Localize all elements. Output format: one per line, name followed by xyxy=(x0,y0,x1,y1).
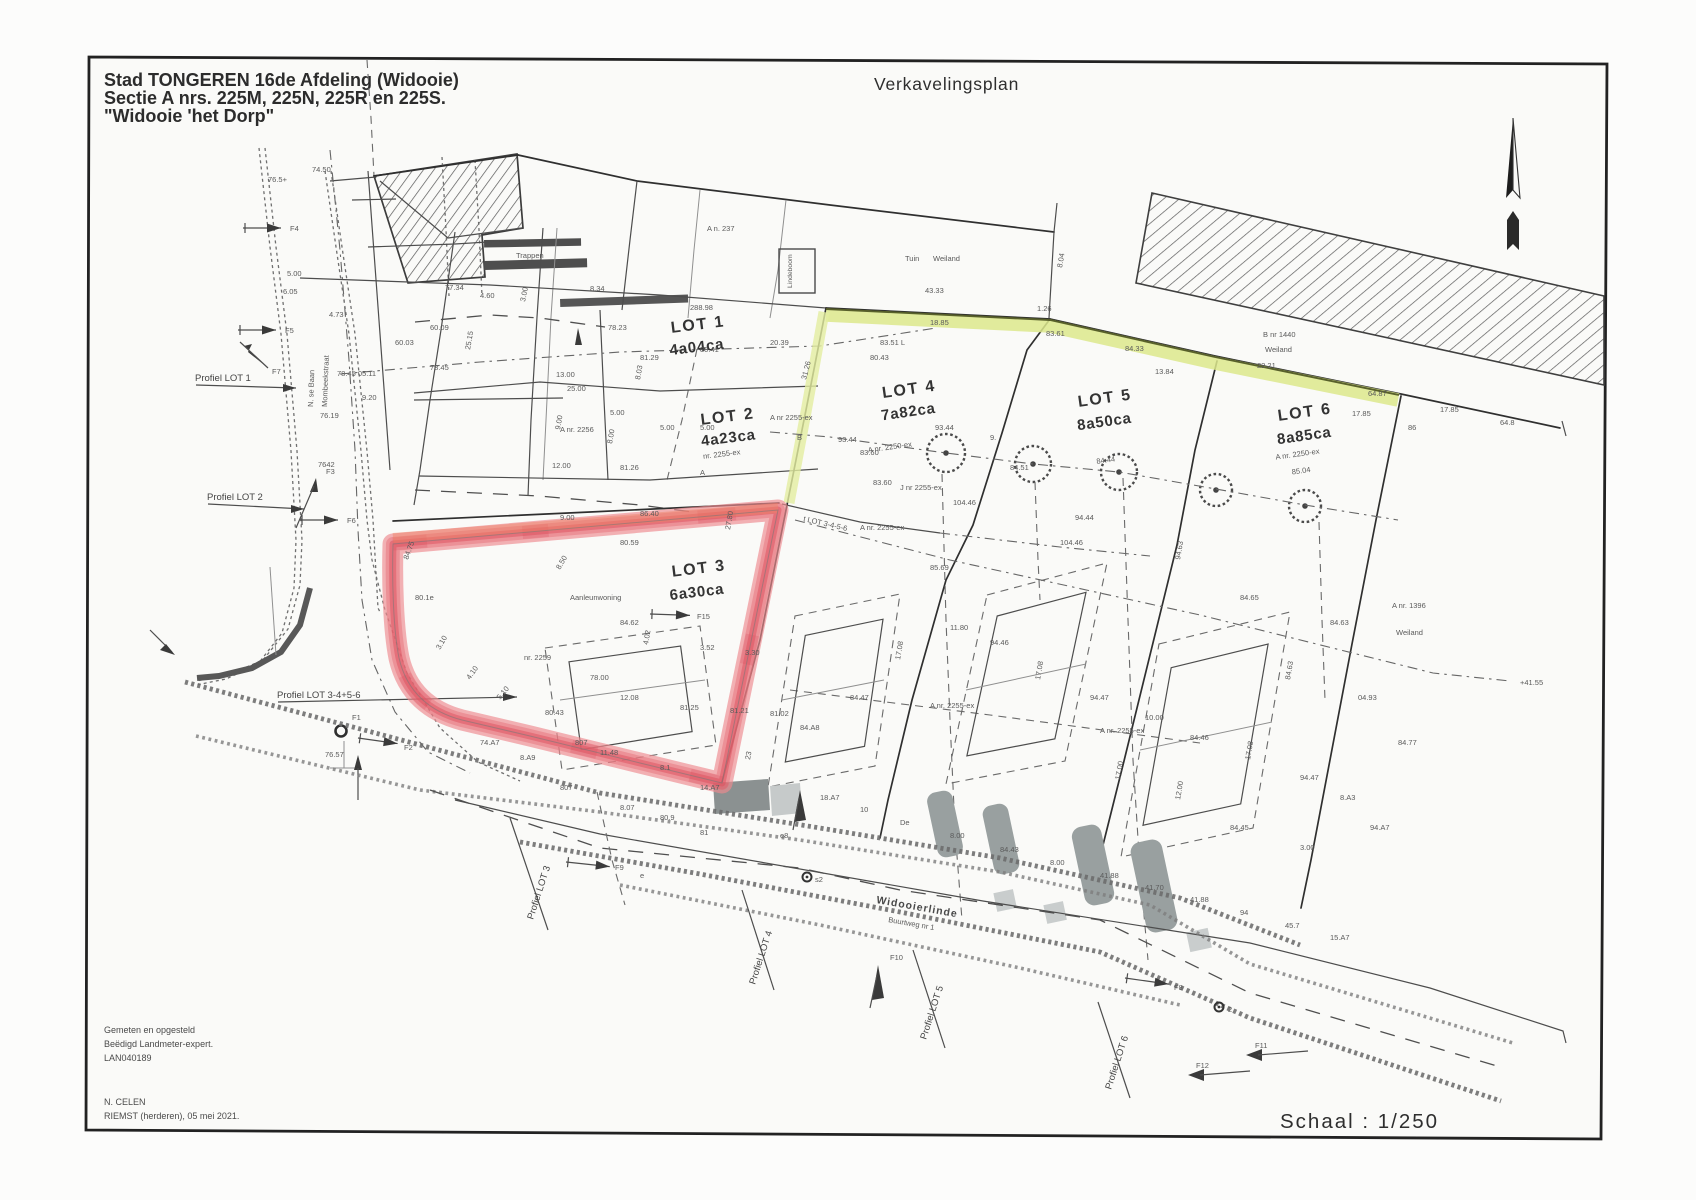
svg-text:84.47: 84.47 xyxy=(850,693,869,702)
svg-text:B nr 1440: B nr 1440 xyxy=(1263,330,1296,339)
svg-text:80.1e: 80.1e xyxy=(415,593,434,602)
svg-text:84.46: 84.46 xyxy=(1190,733,1209,742)
svg-text:8.1: 8.1 xyxy=(660,763,670,772)
svg-text:Stad TONGEREN 16de Afdeling (W: Stad TONGEREN 16de Afdeling (Widooie) xyxy=(104,70,459,90)
svg-text:6.05: 6.05 xyxy=(283,287,298,296)
svg-text:78.00: 78.00 xyxy=(590,673,609,682)
svg-text:Schaal : 1/250: Schaal : 1/250 xyxy=(1280,1110,1439,1133)
svg-text:84.62: 84.62 xyxy=(620,618,639,627)
svg-text:A nr. 1396: A nr. 1396 xyxy=(1392,601,1426,610)
svg-text:Sectie A nrs. 225M, 225N, 225R: Sectie A nrs. 225M, 225N, 225R en 225S. xyxy=(104,88,446,108)
svg-text:94.46: 94.46 xyxy=(990,638,1009,647)
svg-text:N. se Baan: N. se Baan xyxy=(306,370,316,407)
svg-text:Profiel LOT 2: Profiel LOT 2 xyxy=(207,492,263,503)
svg-text:F7: F7 xyxy=(272,367,281,376)
svg-text:76.5+: 76.5+ xyxy=(268,175,288,184)
svg-text:60.09: 60.09 xyxy=(430,323,449,332)
svg-text:14.A7: 14.A7 xyxy=(700,783,720,792)
svg-text:85.69: 85.69 xyxy=(930,563,949,572)
svg-text:94.47: 94.47 xyxy=(1300,773,1319,782)
svg-text:77.34: 77.34 xyxy=(445,283,464,292)
svg-text:17.85: 17.85 xyxy=(1352,409,1371,418)
svg-text:Profiel LOT 1: Profiel LOT 1 xyxy=(195,373,251,384)
svg-text:78.23: 78.23 xyxy=(608,323,627,332)
svg-text:F6: F6 xyxy=(347,516,356,525)
svg-text:86.40: 86.40 xyxy=(640,509,659,518)
svg-text:F11: F11 xyxy=(1255,1041,1267,1050)
svg-text:Aanleunwoning: Aanleunwoning xyxy=(570,593,621,602)
svg-text:94: 94 xyxy=(1240,908,1248,917)
svg-text:Weiland: Weiland xyxy=(1265,345,1292,354)
svg-text:4.60: 4.60 xyxy=(480,291,495,300)
svg-text:A nr. 2255-ex: A nr. 2255-ex xyxy=(930,701,974,710)
svg-text:81: 81 xyxy=(700,828,708,837)
svg-text:A: A xyxy=(700,468,705,477)
svg-text:41.88: 41.88 xyxy=(1100,871,1119,880)
svg-text:807: 807 xyxy=(575,738,588,747)
svg-text:78.45 05.11: 78.45 05.11 xyxy=(337,369,376,378)
svg-text:94.A7: 94.A7 xyxy=(1370,823,1390,832)
svg-text:22.21: 22.21 xyxy=(1257,361,1276,370)
svg-text:RIEMST (herderen), 05 mei 2021: RIEMST (herderen), 05 mei 2021. xyxy=(104,1111,239,1121)
svg-text:Gemeten en opgesteld: Gemeten en opgesteld xyxy=(104,1025,195,1035)
svg-text:76.57: 76.57 xyxy=(325,750,344,759)
svg-text:5.00: 5.00 xyxy=(660,423,675,432)
svg-text:11.48: 11.48 xyxy=(600,748,618,757)
svg-text:78.45: 78.45 xyxy=(430,363,449,372)
svg-text:84.45: 84.45 xyxy=(1230,823,1249,832)
svg-text:80.9: 80.9 xyxy=(660,813,675,822)
svg-text:A nr. 2255-ex: A nr. 2255-ex xyxy=(1100,726,1144,735)
svg-text:10: 10 xyxy=(860,805,868,814)
svg-text:80.59: 80.59 xyxy=(620,538,639,547)
svg-text:F9: F9 xyxy=(615,863,624,872)
svg-text:A n. 237: A n. 237 xyxy=(707,224,735,233)
svg-text:81.02: 81.02 xyxy=(770,709,789,718)
svg-text:84.63: 84.63 xyxy=(1330,618,1349,627)
svg-text:81.26: 81.26 xyxy=(620,463,639,472)
svg-text:83.60: 83.60 xyxy=(873,478,892,487)
svg-text:LAN040189: LAN040189 xyxy=(104,1053,152,1063)
svg-text:45.7: 45.7 xyxy=(1285,921,1300,930)
svg-text:43.33: 43.33 xyxy=(925,286,944,295)
svg-text:11.80: 11.80 xyxy=(950,623,968,632)
svg-text:9.: 9. xyxy=(990,433,996,442)
svg-text:288.98: 288.98 xyxy=(690,303,713,312)
svg-text:Trappen: Trappen xyxy=(516,251,544,260)
svg-text:Tuin: Tuin xyxy=(905,254,919,263)
svg-text:84.51: 84.51 xyxy=(1010,463,1029,472)
svg-text:Weiland: Weiland xyxy=(933,254,960,263)
svg-text:60.03: 60.03 xyxy=(395,338,414,347)
svg-text:"Widooie 'het Dorp": "Widooie 'het Dorp" xyxy=(104,106,274,126)
svg-text:e: e xyxy=(640,871,644,880)
svg-text:8.00: 8.00 xyxy=(950,831,965,840)
svg-text:13.84: 13.84 xyxy=(1155,367,1174,376)
svg-text:94.44: 94.44 xyxy=(1075,513,1094,522)
svg-text:8.A9: 8.A9 xyxy=(520,753,535,762)
svg-text:A nr. 2255-ex: A nr. 2255-ex xyxy=(860,523,904,532)
svg-text:74.50: 74.50 xyxy=(312,165,331,174)
svg-text:15.A7: 15.A7 xyxy=(1330,933,1350,942)
svg-text:B: B xyxy=(797,433,802,442)
svg-text:41.70: 41.70 xyxy=(1145,883,1164,892)
svg-text:F10: F10 xyxy=(890,953,903,962)
svg-text:5.00: 5.00 xyxy=(287,269,302,278)
svg-text:A nr 2255-ex: A nr 2255-ex xyxy=(770,413,813,422)
svg-text:J nr 2255-ex: J nr 2255-ex xyxy=(900,483,942,492)
svg-text:83.61: 83.61 xyxy=(1046,329,1065,338)
svg-text:1.26: 1.26 xyxy=(1037,304,1052,313)
svg-text:81.29: 81.29 xyxy=(640,353,659,362)
svg-text:A nr. 2256: A nr. 2256 xyxy=(560,425,594,434)
svg-text:F12: F12 xyxy=(1196,1061,1209,1070)
svg-text:s2: s2 xyxy=(815,875,823,884)
svg-text:4.73: 4.73 xyxy=(329,310,344,319)
svg-text:94.47: 94.47 xyxy=(1090,693,1109,702)
svg-text:80.43: 80.43 xyxy=(545,708,564,717)
svg-text:5.00: 5.00 xyxy=(610,408,625,417)
svg-text:86: 86 xyxy=(1408,423,1416,432)
svg-text:13.00: 13.00 xyxy=(556,370,575,379)
svg-text:18.A7: 18.A7 xyxy=(820,793,840,802)
svg-text:84.77: 84.77 xyxy=(1398,738,1417,747)
svg-text:Lindeboom: Lindeboom xyxy=(787,254,794,288)
svg-text:F4: F4 xyxy=(290,224,299,233)
svg-text:8.00: 8.00 xyxy=(1050,858,1065,867)
svg-text:3.00: 3.00 xyxy=(1300,843,1315,852)
svg-text:84.A8: 84.A8 xyxy=(800,723,820,732)
svg-text:9.00: 9.00 xyxy=(560,513,575,522)
svg-text:12.00: 12.00 xyxy=(552,461,571,470)
svg-text:76.19: 76.19 xyxy=(320,411,339,420)
svg-text:9.20: 9.20 xyxy=(362,393,377,402)
svg-text:80.43: 80.43 xyxy=(870,353,889,362)
svg-text:3.52: 3.52 xyxy=(700,643,715,652)
svg-text:81.21: 81.21 xyxy=(730,706,749,715)
svg-text:7642: 7642 xyxy=(318,460,335,469)
svg-text:N. CELEN: N. CELEN xyxy=(104,1097,146,1107)
svg-text:8.A3: 8.A3 xyxy=(1340,793,1355,802)
svg-text:74.A7: 74.A7 xyxy=(480,738,500,747)
svg-text:807: 807 xyxy=(560,783,573,792)
svg-text:12.08: 12.08 xyxy=(620,693,639,702)
svg-text:+41.55: +41.55 xyxy=(1520,678,1543,687)
svg-text:93.44: 93.44 xyxy=(838,435,857,444)
svg-text:25.00: 25.00 xyxy=(567,384,586,393)
svg-text:104.46: 104.46 xyxy=(1060,538,1083,547)
svg-text:Verkavelingsplan: Verkavelingsplan xyxy=(874,74,1019,94)
svg-text:41.88: 41.88 xyxy=(1190,895,1209,904)
svg-text:3.30: 3.30 xyxy=(745,648,760,657)
svg-text:84.43: 84.43 xyxy=(1000,845,1019,854)
svg-text:84.65: 84.65 xyxy=(1240,593,1259,602)
svg-text:8.07: 8.07 xyxy=(620,803,635,812)
svg-text:18.85: 18.85 xyxy=(930,318,949,327)
svg-text:F15: F15 xyxy=(697,612,710,621)
svg-text:80.41: 80.41 xyxy=(700,345,719,354)
svg-text:04.93: 04.93 xyxy=(1358,693,1377,702)
svg-text:84.33: 84.33 xyxy=(1125,344,1144,353)
svg-text:23: 23 xyxy=(743,751,753,761)
svg-text:2: 2 xyxy=(1228,1005,1232,1014)
svg-text:e8: e8 xyxy=(780,831,788,840)
svg-text:83.51 L: 83.51 L xyxy=(880,338,905,347)
svg-text:Beëdigd Landmeter-expert.: Beëdigd Landmeter-expert. xyxy=(104,1039,213,1049)
svg-text:Mombeekstraat: Mombeekstraat xyxy=(320,354,331,407)
svg-text:81.25: 81.25 xyxy=(680,703,699,712)
svg-text:83.60: 83.60 xyxy=(860,448,879,457)
svg-text:10.00: 10.00 xyxy=(1145,713,1164,722)
svg-text:17.85: 17.85 xyxy=(1440,405,1459,414)
svg-text:64.8: 64.8 xyxy=(1500,418,1515,427)
svg-text:104.46: 104.46 xyxy=(953,498,976,507)
svg-text:F5: F5 xyxy=(285,326,294,335)
svg-text:5.00: 5.00 xyxy=(700,423,715,432)
svg-text:nr. 2259: nr. 2259 xyxy=(524,653,551,662)
svg-text:Weiland: Weiland xyxy=(1396,628,1423,637)
svg-text:De: De xyxy=(900,818,910,827)
svg-text:64.87: 64.87 xyxy=(1368,389,1387,398)
svg-text:Profiel LOT 3-4+5-6: Profiel LOT 3-4+5-6 xyxy=(277,690,361,701)
svg-text:20.39: 20.39 xyxy=(770,338,789,347)
svg-text:F8: F8 xyxy=(1174,983,1183,992)
svg-text:F1: F1 xyxy=(352,713,361,722)
svg-text:93.44: 93.44 xyxy=(935,423,954,432)
